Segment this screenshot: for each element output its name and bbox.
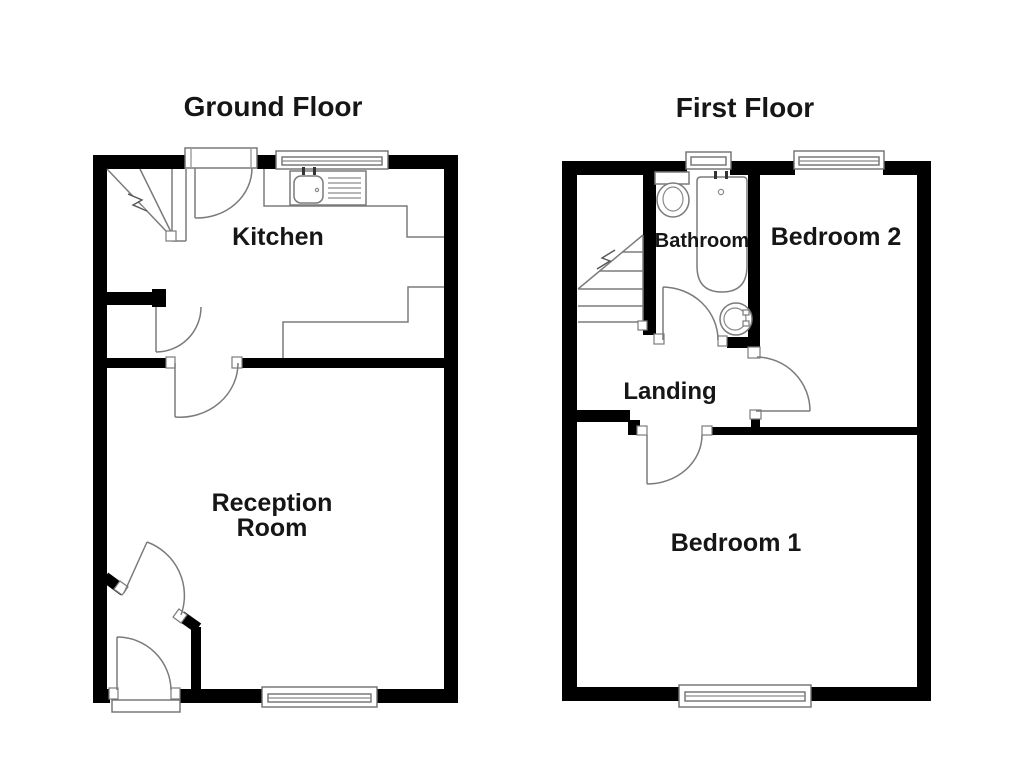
kitchen-window xyxy=(276,151,388,169)
first-floor-plan: First Floor xyxy=(562,92,931,707)
bathroom-window xyxy=(686,152,731,169)
wall xyxy=(93,358,167,368)
bedroom2-door xyxy=(748,347,810,419)
toilet-cistern xyxy=(655,172,689,184)
landing-wall xyxy=(562,410,630,422)
kitchen-label: Kitchen xyxy=(232,223,324,251)
front-door-sill xyxy=(112,700,180,712)
kitchen-sink-unit xyxy=(264,167,444,358)
wall xyxy=(562,161,577,701)
bedroom1-window xyxy=(679,685,811,707)
bathroom-wall xyxy=(643,175,656,335)
door-swing-arc xyxy=(156,307,201,352)
lobby-door-swing-arc xyxy=(147,542,184,615)
door-jamb xyxy=(718,336,727,346)
wall xyxy=(562,687,680,701)
wall xyxy=(93,155,107,703)
bedroom1-label: Bedroom 1 xyxy=(671,529,802,557)
reception-room-label-line2: Room xyxy=(237,514,308,542)
sink-tap xyxy=(302,167,305,175)
reception-room-label-line1: Reception xyxy=(212,489,333,517)
entrance-lobby xyxy=(109,542,187,712)
door-frame xyxy=(185,148,257,168)
landing-bedroom1-wall xyxy=(712,427,917,435)
door-swing-arc xyxy=(195,168,252,218)
wall xyxy=(180,689,262,703)
door-swing-arc xyxy=(663,287,718,340)
counter-edge xyxy=(283,287,444,358)
wall-stub-end xyxy=(152,289,166,307)
first-floor-title: First Floor xyxy=(676,92,815,123)
door-swing-arc xyxy=(175,363,238,417)
front-door-swing-arc xyxy=(117,637,171,690)
wall xyxy=(242,358,444,368)
first-staircase xyxy=(578,235,647,330)
bathroom-door xyxy=(654,287,727,346)
wall xyxy=(257,155,277,169)
back-door xyxy=(185,148,257,218)
stair-winder-line xyxy=(140,169,171,232)
wash-basin xyxy=(720,303,752,335)
stair-break-mark xyxy=(128,194,147,211)
sink-tap xyxy=(313,167,316,175)
stair-newel xyxy=(166,231,176,241)
wall-stub xyxy=(107,292,152,305)
bath-tap xyxy=(725,171,728,179)
lobby-door-leaf xyxy=(124,542,147,593)
door-jamb xyxy=(702,426,712,435)
reception-door xyxy=(166,357,242,417)
wall xyxy=(730,161,795,175)
ground-floor-title: Ground Floor xyxy=(184,91,363,122)
floor-plan-svg: Ground Floor xyxy=(0,0,1024,768)
kitchen-inner-door xyxy=(156,307,201,352)
stair-winder-line xyxy=(578,235,643,289)
toilet-bowl xyxy=(657,183,689,217)
bedroom2-label: Bedroom 2 xyxy=(771,223,902,251)
door-jamb xyxy=(232,357,242,368)
bath-tap xyxy=(714,171,717,179)
reception-window xyxy=(262,687,377,707)
wall xyxy=(810,687,931,701)
ground-staircase xyxy=(107,169,186,241)
bedroom2-window xyxy=(794,151,884,169)
door-jamb xyxy=(171,688,180,699)
bathroom-label: Bathroom xyxy=(655,230,749,252)
door-swing-arc xyxy=(647,435,702,484)
bathroom-wall xyxy=(727,337,748,348)
wall xyxy=(917,161,931,701)
toilet xyxy=(655,172,689,217)
wall xyxy=(93,689,110,703)
door-swing-arc xyxy=(757,357,810,411)
door-jamb xyxy=(166,357,175,368)
stair-newel xyxy=(638,321,647,330)
basin-tap xyxy=(743,321,749,326)
window-glazing xyxy=(691,157,726,165)
landing-label: Landing xyxy=(623,378,716,405)
wall xyxy=(444,155,458,703)
lobby-wall xyxy=(191,627,201,689)
basin-tap xyxy=(743,310,749,315)
ground-floor-plan: Ground Floor xyxy=(93,91,458,712)
wall xyxy=(377,689,458,703)
bedroom1-door xyxy=(637,426,712,484)
floor-plan-canvas: Ground Floor xyxy=(0,0,1024,768)
door-jamb xyxy=(637,426,647,435)
